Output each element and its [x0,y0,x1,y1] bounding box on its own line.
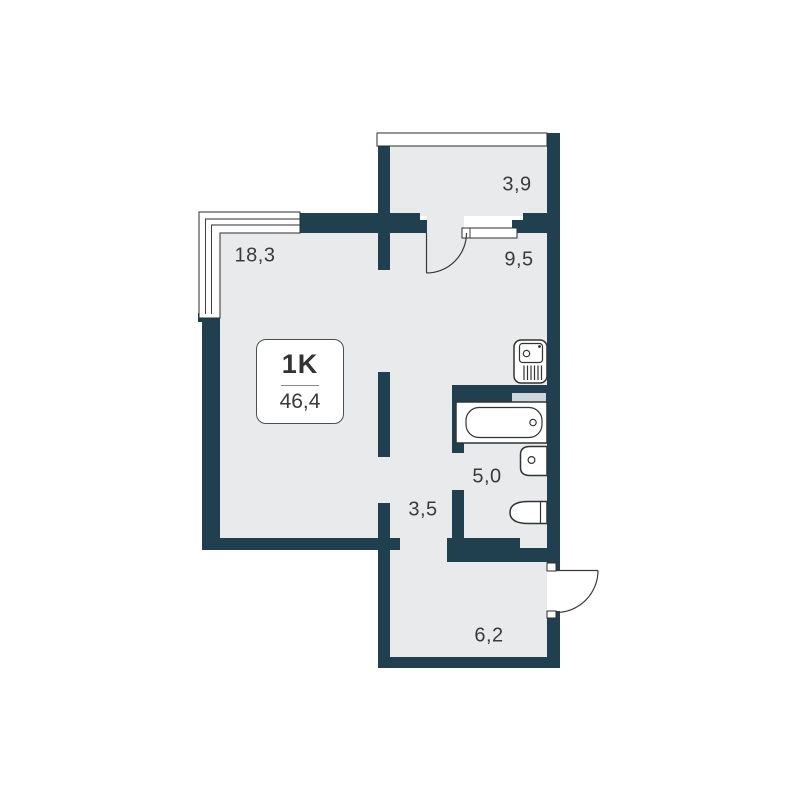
entry-bottom-wall [378,657,560,668]
balcony-left-wall [378,137,390,270]
balcony-hall-wall [523,213,547,233]
unit-type-label: 1K [282,350,319,380]
unit-total-area: 46,4 [280,390,321,413]
kitchen-sink-icon [514,340,547,383]
unit-info-box: 1K 46,4 [256,339,344,424]
room-area-label-bathroom: 5,0 [472,466,501,489]
entrance-door-jamb-bottom [547,611,556,618]
washbasin-icon [521,447,548,476]
bathtub-icon [456,402,547,443]
balcony-door-jamb [418,220,427,233]
floor-plan-svg [0,0,800,800]
left-outer-wall [202,318,220,550]
toilet-icon [510,502,547,524]
room-area-label-balcony: 3,9 [502,174,531,197]
room-area-label-hallway: 9,5 [504,249,533,272]
bathroom-bottom-wall [447,538,520,562]
balcony-glazing [377,133,547,146]
entry-floor [390,550,547,657]
living-top-wall [300,213,420,233]
corridor-left-wall [378,503,390,668]
room-area-label-entry-hall: 6,2 [474,625,503,648]
bathroom-left-wall-lower [452,490,464,538]
entrance-door-jamb-top [547,563,556,571]
unit-info-divider [281,385,319,386]
right-outer-wall-upper [547,133,560,571]
living-bottom-wall [202,538,400,550]
bathroom-bottom-wall-step [520,548,560,562]
floor-plan: 18,3 3,9 9,5 5,0 3,5 6,2 1K 46,4 [0,0,800,800]
entrance-door [547,563,598,618]
center-partition-stub [378,372,390,457]
room-area-label-corridor: 3,5 [408,499,437,522]
room-area-label-living-room: 18,3 [235,245,276,268]
